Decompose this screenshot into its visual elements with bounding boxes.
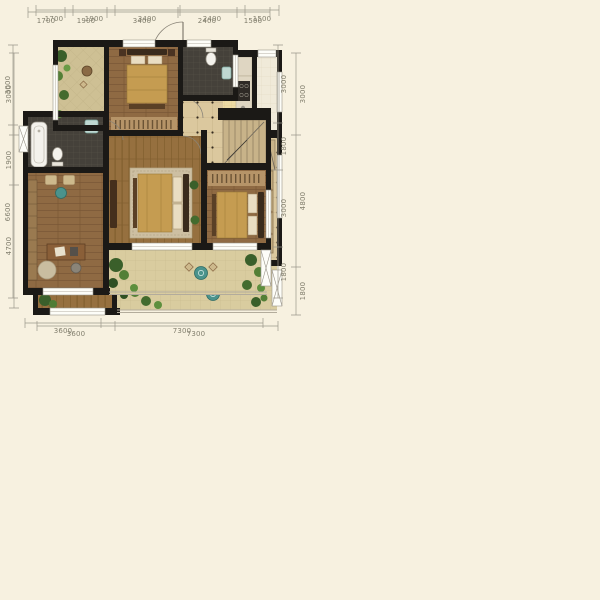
drain: [38, 130, 41, 133]
desk: [47, 244, 85, 260]
dim-label: 3400: [133, 17, 152, 25]
balcony-table: [195, 267, 208, 280]
dim-label: 4800: [299, 192, 307, 211]
window: [43, 288, 93, 295]
bathtub-icon: [31, 122, 47, 167]
dim-label: 3000: [299, 85, 307, 104]
nightstand: [168, 49, 175, 56]
toilet-tank: [206, 48, 216, 52]
window: [233, 55, 238, 87]
window: [187, 40, 211, 47]
laptop-icon: [70, 247, 78, 256]
balcony-window: [261, 250, 271, 286]
closet: [208, 171, 265, 186]
desk-chair: [71, 263, 81, 273]
toilet-icon: [53, 148, 63, 161]
dim-label: 7300: [173, 327, 192, 335]
dim-label: 3000: [4, 76, 12, 95]
sliding-door: [132, 243, 192, 250]
dim-label: 1800: [280, 137, 288, 156]
floor-plan-sheet: 1700 1900 3400 2400 1500 3000 1900 4700 …: [0, 0, 600, 600]
dim-label: 1800: [299, 282, 307, 301]
toilet-icon: [206, 53, 216, 66]
dim-label: 6600: [4, 203, 12, 222]
upper-floor-plan: 1700 1900 3400 2400 1500 3000 6600 3000 …: [0, 0, 295, 345]
dim-label: 1500: [244, 17, 263, 25]
tea-table: [56, 188, 67, 199]
tea-chair: [63, 175, 75, 185]
bay-window: [19, 126, 28, 152]
dim-label: 1800: [280, 263, 288, 282]
tea-chair: [45, 175, 57, 185]
toilet-tank: [52, 162, 63, 166]
study-rug: [38, 261, 56, 279]
plant-icon: [190, 181, 199, 190]
dim-label: 3600: [54, 327, 73, 335]
desk-paper: [54, 246, 65, 256]
dim-label: 1700: [37, 17, 56, 25]
tv-cabinet: [110, 180, 117, 228]
terrace-table: [82, 66, 92, 76]
window: [53, 65, 58, 120]
window: [123, 40, 155, 47]
dim-label: 2400: [198, 17, 217, 25]
sliding-door: [213, 243, 257, 250]
dim-label: 1900: [77, 17, 96, 25]
sink-icon: [222, 67, 231, 79]
window: [266, 190, 271, 238]
nightstand: [119, 49, 126, 56]
dim-label: 3000: [280, 199, 288, 218]
dim-label: 3000: [280, 75, 288, 94]
bookshelf: [28, 180, 37, 280]
plant-icon: [191, 216, 200, 225]
